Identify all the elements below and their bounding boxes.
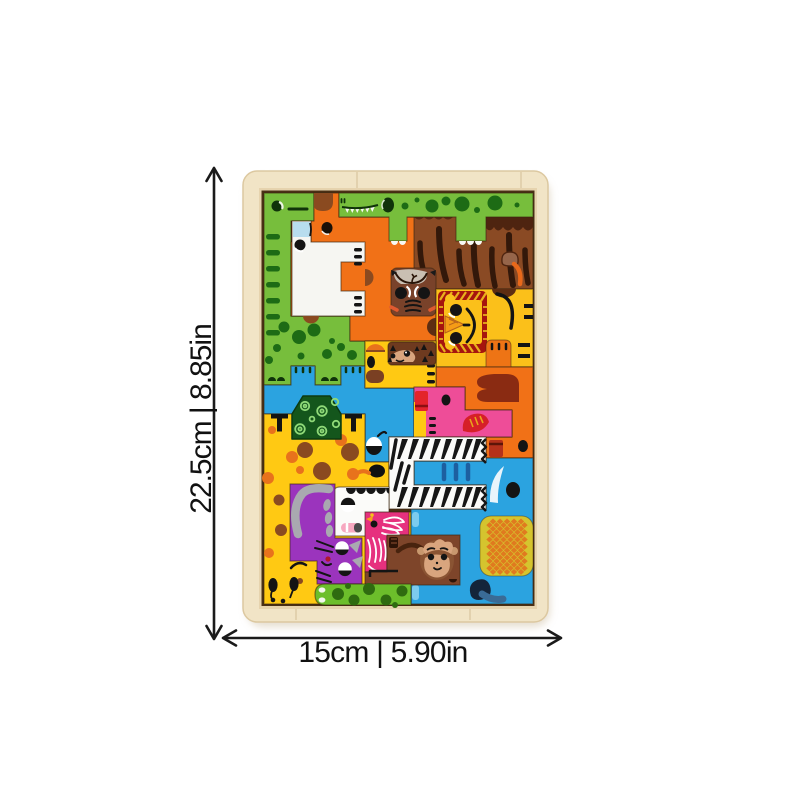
svg-text:15cm | 5.90in: 15cm | 5.90in (298, 636, 467, 669)
svg-text:22.5cm | 8.85in: 22.5cm | 8.85in (185, 324, 218, 514)
